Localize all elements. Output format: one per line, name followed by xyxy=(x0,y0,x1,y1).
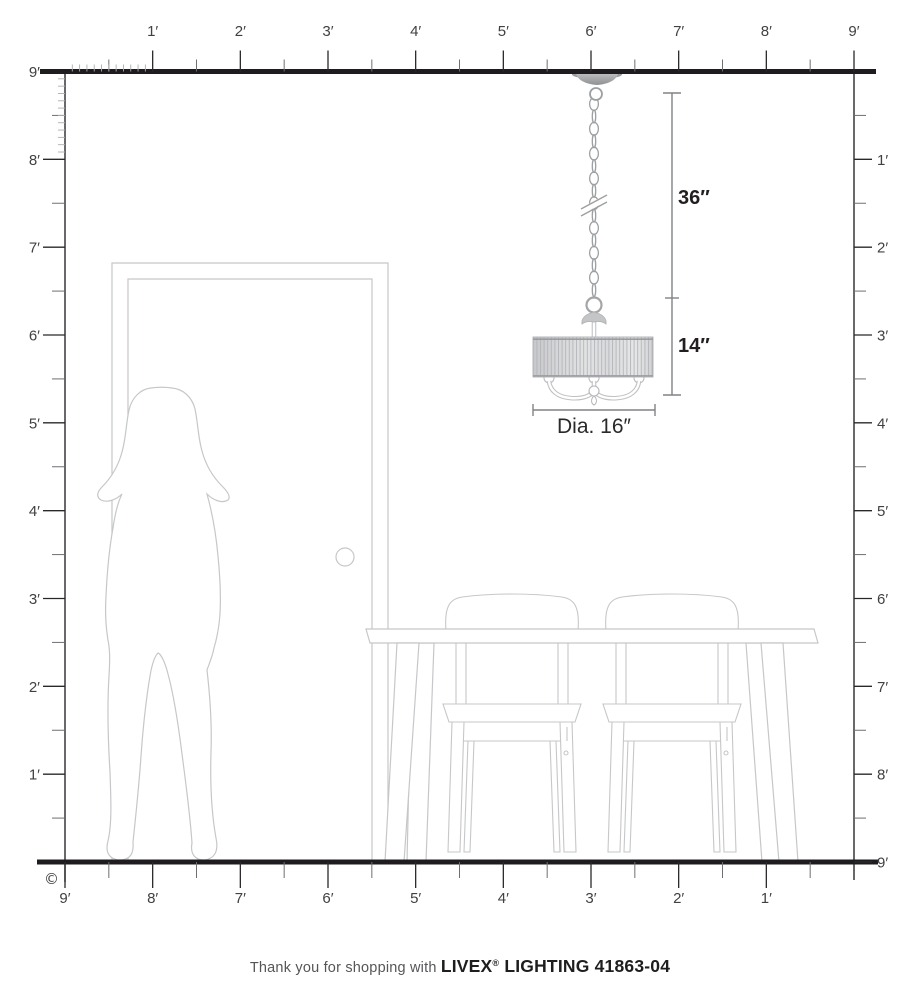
fixture-height-label: 14″ xyxy=(678,335,710,357)
chain-link xyxy=(590,122,599,135)
drum-shade xyxy=(533,337,653,377)
footer-thanks-text: Thank you for shopping with xyxy=(250,960,437,976)
ruler-label: 7′ xyxy=(235,890,246,907)
pendant-light xyxy=(533,70,653,405)
room-scale-diagram: 36″ 14″ Dia. 16″ 1′2′3′4′5′6′7′8′9′ 9′8′… xyxy=(0,0,920,1000)
ruler-label: 3′ xyxy=(585,890,596,907)
chain-link xyxy=(590,271,599,284)
chain-length-label: 36″ xyxy=(678,187,710,209)
ruler-label: 1′ xyxy=(29,767,40,784)
chain-link xyxy=(592,234,595,247)
footer: Thank you for shopping with LIVEX® LIGHT… xyxy=(0,956,920,977)
chain xyxy=(590,98,599,297)
ruler-label: 7′ xyxy=(29,240,40,257)
chain-link xyxy=(590,147,599,160)
door-knob xyxy=(336,548,354,566)
ruler-bottom: 9′8′7′6′5′4′3′2′1′ xyxy=(59,862,810,907)
ruler-label: 8′ xyxy=(147,890,158,907)
ruler-label: 1′ xyxy=(147,23,158,40)
copyright-icon: © xyxy=(44,870,59,888)
ruler-label: 1′ xyxy=(761,890,772,907)
chain-link xyxy=(592,110,595,123)
ruler-left: 9′8′7′6′5′4′3′2′1′ xyxy=(29,64,65,818)
ruler-label: 3′ xyxy=(322,23,333,40)
footer-product-number: LIGHTING 41863-04 xyxy=(504,956,670,976)
ruler-label: 5′ xyxy=(29,415,40,432)
chain-link xyxy=(592,259,595,272)
ruler-label: 8′ xyxy=(877,767,888,784)
ruler-label: 2′ xyxy=(877,240,888,257)
ruler-label: 6′ xyxy=(29,328,40,345)
ruler-right: 1′2′3′4′5′6′7′8′9′ xyxy=(854,115,888,871)
ruler-label: 2′ xyxy=(29,679,40,696)
ruler-label: 2′ xyxy=(235,23,246,40)
ruler-top: 1′2′3′4′5′6′7′8′9′ xyxy=(72,23,859,72)
chain-link xyxy=(590,246,599,259)
chain-link xyxy=(592,184,595,197)
fixture-hub xyxy=(589,386,599,396)
ruler-label: 9′ xyxy=(848,23,859,40)
ruler-label: 1′ xyxy=(877,152,888,169)
person-silhouette xyxy=(98,387,229,860)
ruler-label: 8′ xyxy=(761,23,772,40)
ruler-label: 7′ xyxy=(673,23,684,40)
table-top xyxy=(366,629,818,643)
footer-brand: LIVEX® LIGHTING 41863-04 xyxy=(441,956,670,976)
chain-link xyxy=(592,209,595,222)
registered-trademark-icon: ® xyxy=(492,958,499,968)
chain-link xyxy=(592,135,595,148)
ruler-label: 8′ xyxy=(29,152,40,169)
ruler-label: 4′ xyxy=(877,415,888,432)
ruler-label: 9′ xyxy=(59,890,70,907)
ruler-label: 9′ xyxy=(29,64,40,81)
fixture-diameter-label: Dia. 16″ xyxy=(557,415,632,438)
fixture-finial xyxy=(592,396,597,405)
ruler-label: 5′ xyxy=(410,890,421,907)
ruler-label: 6′ xyxy=(877,591,888,608)
ruler-label: 5′ xyxy=(498,23,509,40)
ruler-label: 3′ xyxy=(29,591,40,608)
fixture-stem xyxy=(592,322,596,339)
ruler-label: 5′ xyxy=(877,503,888,520)
ruler-label: 4′ xyxy=(29,503,40,520)
ruler-label: 6′ xyxy=(585,23,596,40)
ruler-label: 3′ xyxy=(877,328,888,345)
chain-link xyxy=(590,222,599,235)
chain-link xyxy=(590,172,599,185)
canopy-ring xyxy=(590,88,602,100)
scale-diagram-page: 36″ 14″ Dia. 16″ 1′2′3′4′5′6′7′8′9′ 9′8′… xyxy=(0,0,920,1000)
ruler-label: 7′ xyxy=(877,679,888,696)
chain-link xyxy=(592,160,595,173)
chain-link xyxy=(592,284,595,297)
dining-table xyxy=(366,629,818,862)
ruler-label: 4′ xyxy=(498,890,509,907)
ruler-label: 2′ xyxy=(673,890,684,907)
ruler-label: 9′ xyxy=(877,855,888,872)
ruler-label: 4′ xyxy=(410,23,421,40)
fixture-ring xyxy=(587,298,602,313)
ruler-label: 6′ xyxy=(322,890,333,907)
